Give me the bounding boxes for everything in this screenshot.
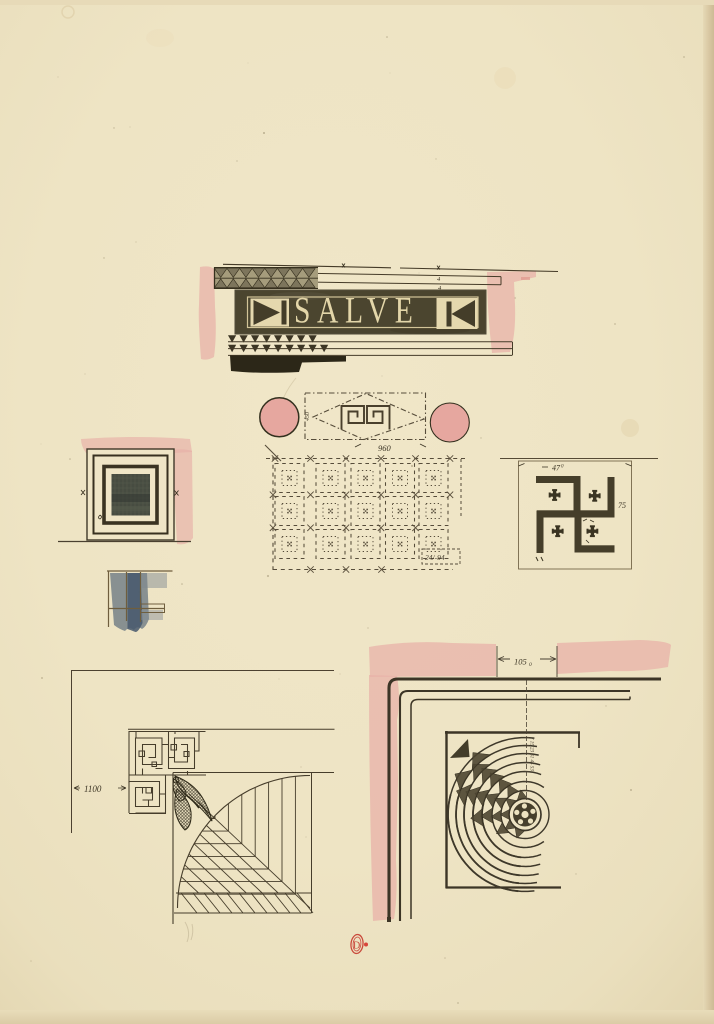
svg-text:D: D: [353, 941, 360, 952]
svg-text:SALVE: SALVE: [294, 290, 419, 331]
svg-text:0: 0: [529, 662, 532, 668]
svg-text:7 15 23 31 45 53: 7 15 23 31 45 53: [529, 737, 534, 771]
svg-text:960: 960: [378, 443, 392, 453]
svg-text:105: 105: [514, 657, 527, 667]
svg-text:1100: 1100: [84, 784, 102, 794]
svg-text:450: 450: [304, 412, 311, 421]
svg-text:47: 47: [552, 464, 561, 473]
svg-text:75: 75: [618, 501, 626, 510]
svg-text:24/-94: 24/-94: [425, 553, 445, 562]
